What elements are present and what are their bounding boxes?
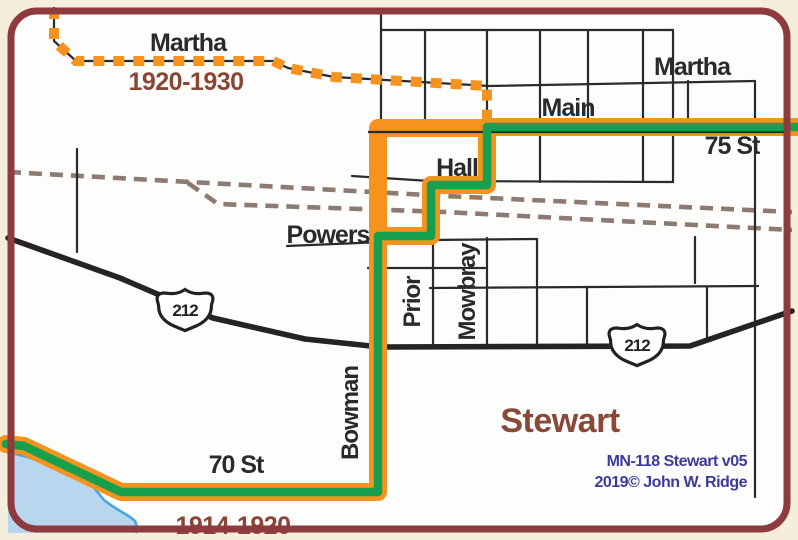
street-label-martha-ne: Martha: [654, 53, 732, 81]
map-background: [11, 11, 787, 529]
street-label-hall: Hall: [436, 154, 478, 182]
shield-number: 212: [624, 336, 650, 355]
shield-number: 212: [172, 301, 198, 320]
street-label-main: Main: [542, 94, 595, 122]
street-label-martha-nw: Martha: [150, 29, 228, 57]
street-label-75-st: 75 St: [705, 132, 761, 160]
street-label-bowman: Bowman: [337, 366, 364, 460]
credit-line-1: MN-118 Stewart v05: [607, 453, 748, 470]
town-label: Stewart: [500, 402, 619, 440]
era-label-north: 1920-1930: [128, 68, 243, 96]
credit-line-2: 2019© John W. Ridge: [594, 474, 747, 491]
street-label-powers: Powers: [287, 221, 370, 249]
street-label-70-st: 70 St: [209, 451, 265, 479]
map-screenshot: 212 212 Martha 1920-1930 Martha Main 75 …: [0, 0, 798, 540]
stewart-map-svg: 212 212 Martha 1920-1930 Martha Main 75 …: [0, 0, 798, 540]
street-label-mowbray: Mowbray: [454, 242, 481, 341]
street-label-prior: Prior: [399, 276, 426, 328]
